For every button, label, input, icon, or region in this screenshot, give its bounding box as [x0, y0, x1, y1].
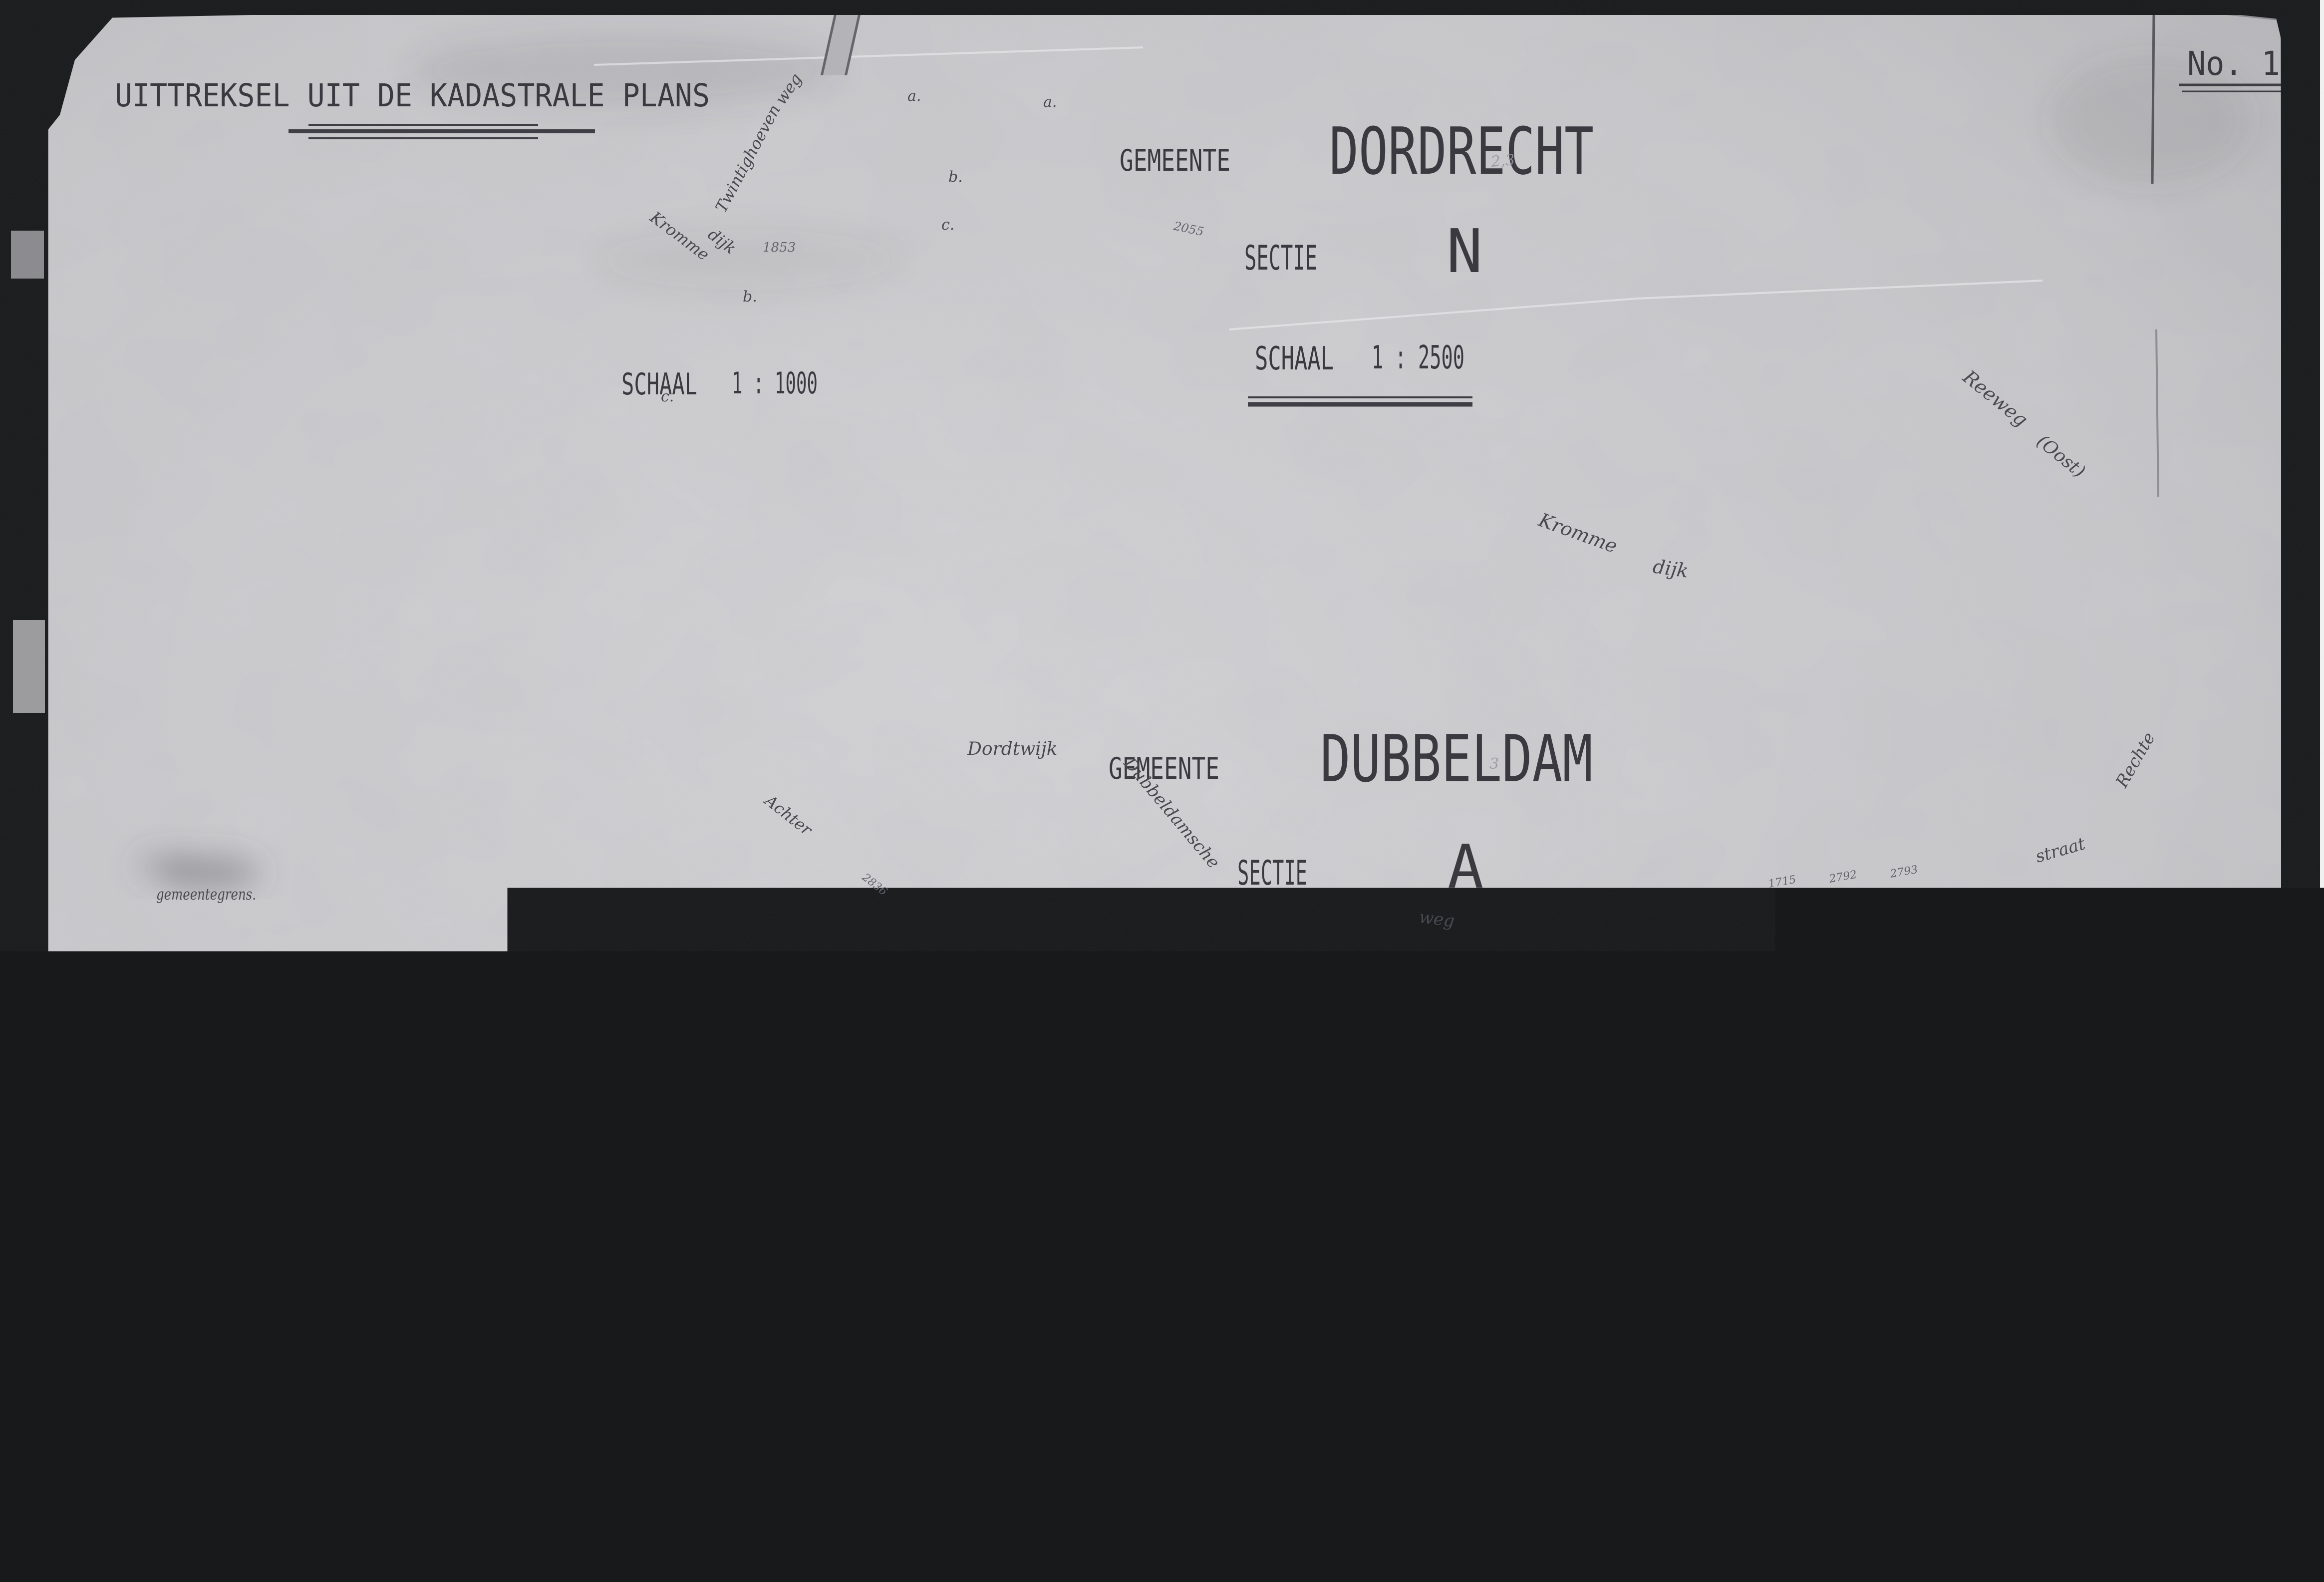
cadastral-map-svg: UITTREKSEL UIT DE KADASTRALE PLANSNo. 1G…	[0, 0, 2324, 1582]
cadastral-map-photo: UITTREKSEL UIT DE KADASTRALE PLANSNo. 1G…	[0, 0, 2324, 1582]
film-grain	[0, 0, 2324, 1582]
